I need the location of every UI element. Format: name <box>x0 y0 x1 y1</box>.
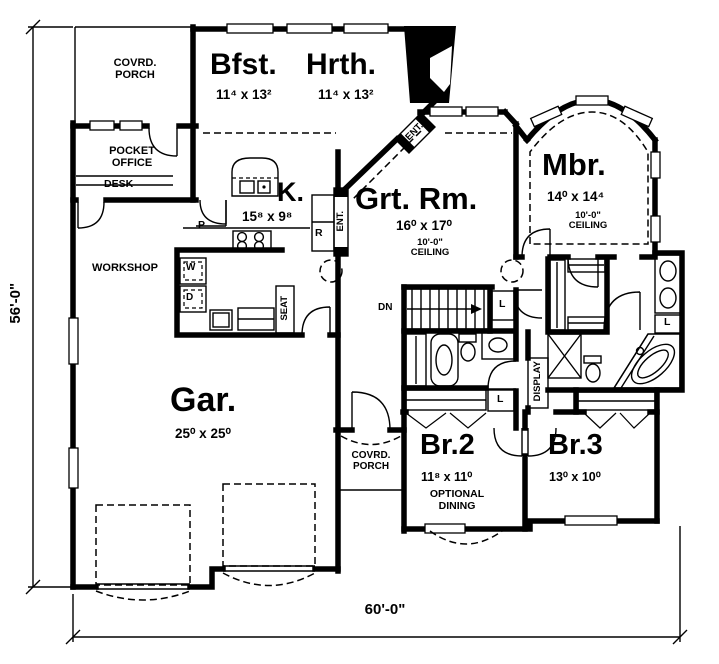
dimension-label-left: 56'-0" <box>8 263 25 343</box>
room-label-master-bedroom: Mbr. <box>542 148 606 182</box>
mud-closet <box>238 308 274 330</box>
stairs <box>403 289 490 329</box>
room-label-garage: Gar. <box>170 382 236 419</box>
utility-sink <box>210 310 232 330</box>
annotation-linen-hall: L <box>497 394 503 406</box>
room-dims-hearth: 11⁴ x 13² <box>318 88 373 103</box>
room-dims-bedroom2: 11⁸ x 11⁰ <box>421 471 472 485</box>
annotation-seat: SEAT <box>280 291 290 325</box>
room-label-kitchen: K. <box>277 178 304 208</box>
annotation-stairs-down: DN <box>378 302 392 313</box>
room-dims-garage: 25⁰ x 25⁰ <box>175 427 231 442</box>
refrigerator <box>312 195 334 251</box>
annotation-dryer: D <box>186 292 193 303</box>
hall-bath <box>431 332 514 386</box>
annotation-range: R <box>315 228 323 240</box>
floor-plan: COVRD. PORCH Bfst. 11⁴ x 13² Hrth. 11⁴ x… <box>0 0 719 664</box>
room-label-bedroom2: Br.2 <box>420 430 475 462</box>
room-label-covered-porch-bottom: COVRD. PORCH <box>341 450 401 472</box>
room-label-covered-porch-top: COVRD. PORCH <box>96 57 174 81</box>
room-dims-bedroom3: 13⁰ x 10⁰ <box>549 471 601 485</box>
dimension-label-bottom: 60'-0" <box>340 602 430 619</box>
room-dims-master-bedroom: 14⁰ x 14⁴ <box>547 190 604 205</box>
room-label-breakfast: Bfst. <box>210 48 277 81</box>
annotation-entry-lower: ENT. <box>336 206 346 236</box>
room-note-bedroom2: OPTIONAL DINING <box>417 489 497 512</box>
annotation-washer: W <box>186 262 195 273</box>
room-label-desk: DESK <box>104 179 133 191</box>
annotation-display: DISPLAY <box>533 356 543 406</box>
room-label-pocket-office: POCKET OFFICE <box>92 145 172 169</box>
room-dims-breakfast: 11⁴ x 13² <box>216 88 271 103</box>
room-dims-great-room: 16⁰ x 17⁰ <box>396 219 452 234</box>
annotation-pantry: P <box>198 220 205 232</box>
annotation-linen-stairs: L <box>499 299 505 311</box>
room-label-great-room: Grt. Rm. <box>355 182 477 216</box>
room-dims-kitchen: 15⁸ x 9⁸ <box>242 210 292 225</box>
room-label-bedroom3: Br.3 <box>548 430 603 462</box>
room-ceiling-master-bedroom: 10'-0" CEILING <box>557 211 619 232</box>
kitchen-island <box>232 158 278 196</box>
room-label-hearth: Hrth. <box>306 48 376 81</box>
room-ceiling-great-room: 10'-0" CEILING <box>399 238 461 259</box>
annotation-linen-master: L <box>664 317 670 329</box>
room-label-workshop: WORKSHOP <box>92 262 158 274</box>
